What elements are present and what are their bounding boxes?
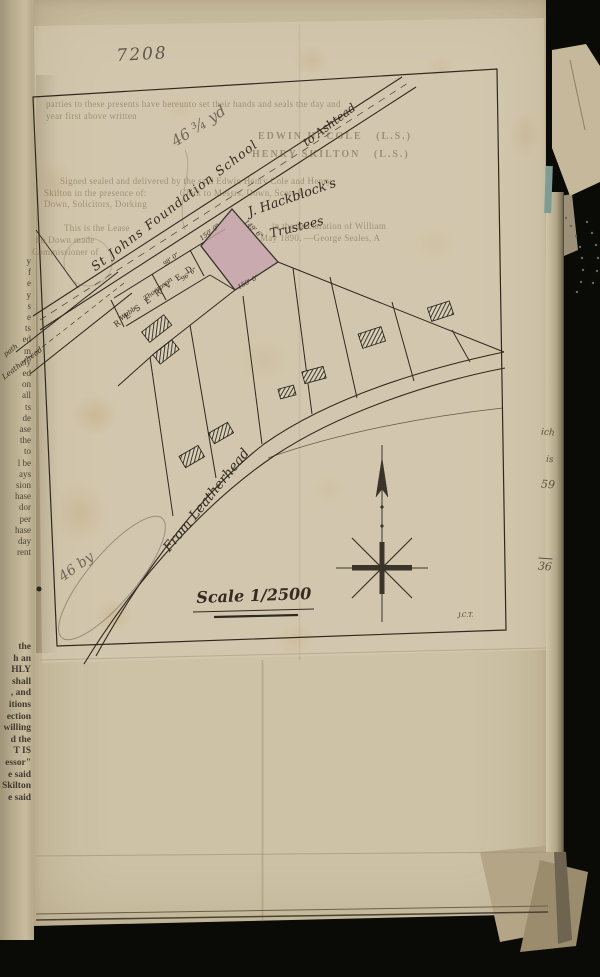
text-fragment: the: [1, 642, 31, 654]
binding-perforations: [565, 217, 599, 293]
text-fragment: f: [1, 267, 31, 278]
ghost-deed-line: year first above written: [46, 111, 137, 121]
page-crease: [261, 660, 264, 922]
text-fragment: shall: [1, 677, 31, 689]
text-fragment: e said: [1, 793, 31, 805]
scale-label: Scale 1/2500: [196, 584, 312, 607]
text-fragment: e said: [1, 770, 31, 782]
text-fragment: day: [1, 536, 31, 547]
text-fragment: itions: [1, 700, 31, 712]
ghost-signature-cole: EDWIN H. COLE (L.S.): [258, 131, 412, 142]
text-fragment: de: [1, 413, 31, 424]
ghost-signature-skilton: HENRY SKILTON (L.S.): [252, 149, 410, 160]
text-fragment: y: [1, 290, 31, 301]
margin-note-total: 36: [537, 558, 552, 574]
text-fragment: hase: [1, 491, 31, 502]
text-fragment: ts: [1, 402, 31, 413]
margin-note: 59: [541, 478, 556, 492]
page-crease: [298, 24, 301, 660]
margin-note: ich: [541, 428, 555, 439]
scanned-page-photo: yfeysetsedmlyedonalltsdeasethetol beayss…: [0, 0, 600, 977]
handwritten-number-7208: 7208: [116, 43, 168, 66]
left-page-strip: yfeysetsedmlyedonalltsdeasethetol beayss…: [0, 0, 34, 940]
text-fragment: hase: [1, 525, 31, 536]
ghost-deed-line: parties to these presents have hereunto …: [46, 99, 341, 109]
folded-page-corner: [552, 44, 600, 196]
text-fragment: y: [1, 256, 31, 267]
torn-page-crease: [554, 850, 572, 944]
text-fragment: l be: [1, 458, 31, 469]
text-fragment: to: [1, 446, 31, 457]
text-fragment: h an: [1, 654, 31, 666]
text-fragment: ays: [1, 469, 31, 480]
map-fold-shadow: [36, 75, 58, 653]
ghost-deed-line: Commissioner of: [32, 247, 99, 257]
text-fragment: all: [1, 390, 31, 401]
text-fragment: ection: [1, 712, 31, 724]
left-page-text-fragments-lower: theh anHLYshall, anditionsectionwillingd…: [1, 642, 31, 804]
text-fragment: dor: [1, 502, 31, 513]
surveyor-initials: J.C.T.: [458, 611, 473, 619]
text-fragment: essor": [1, 758, 31, 770]
text-fragment: , and: [1, 688, 31, 700]
fold-crease-line: [570, 60, 585, 130]
text-fragment: e: [1, 312, 31, 323]
left-page-text-fragments-upper: yfeysetsedmlyedonalltsdeasethetol beayss…: [1, 256, 31, 558]
margin-note: is: [546, 455, 554, 465]
text-fragment: Skilton: [1, 781, 31, 793]
text-fragment: sion: [1, 480, 31, 491]
text-fragment: HLY: [1, 665, 31, 677]
text-fragment: willing: [1, 723, 31, 735]
text-fragment: the: [1, 435, 31, 446]
text-fragment: ase: [1, 424, 31, 435]
next-page-curl-edge: [546, 192, 564, 852]
ghost-deed-line: hn Down made: [36, 235, 95, 245]
text-fragment: per: [1, 514, 31, 525]
ghost-deed-line: Down, Solicitors, Dorking: [44, 199, 147, 209]
text-fragment: s: [1, 301, 31, 312]
ghost-deed-line: This is the Lease: [64, 223, 130, 233]
text-fragment: e: [1, 278, 31, 289]
text-fragment: rent: [1, 547, 31, 558]
text-fragment: ts: [1, 323, 31, 334]
text-fragment: T IS: [1, 746, 31, 758]
text-fragment: d the: [1, 735, 31, 747]
